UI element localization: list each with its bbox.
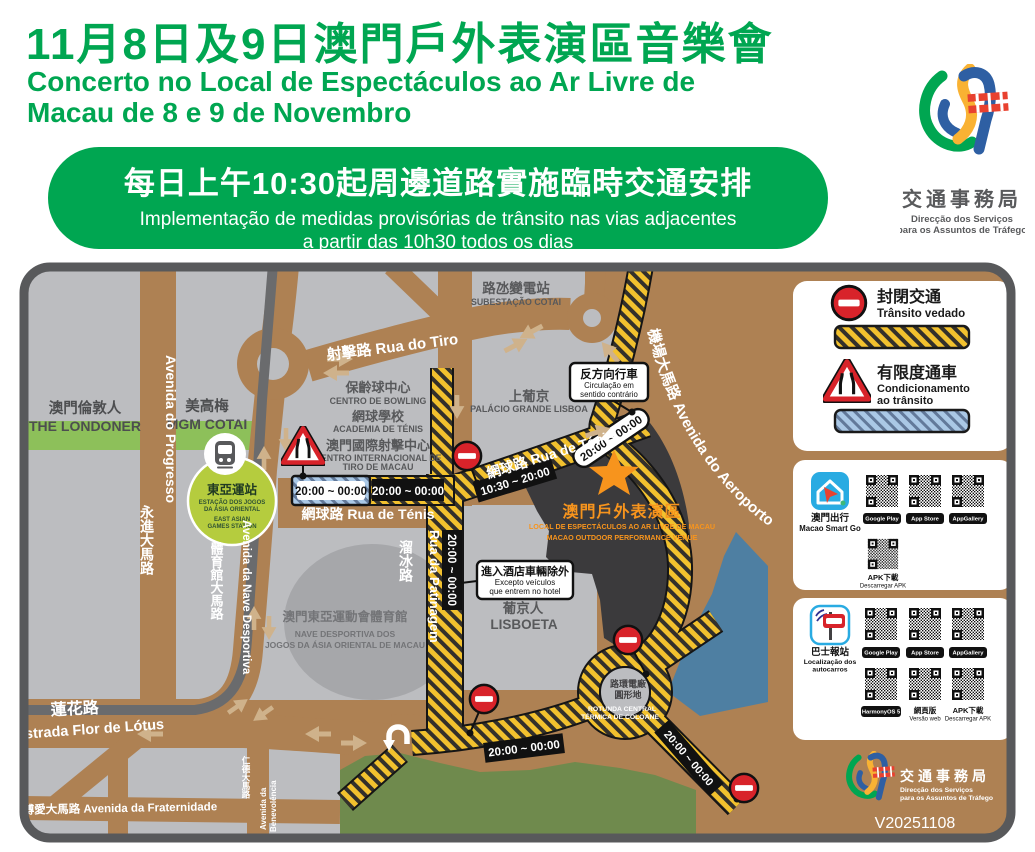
- svg-text:AppGallery: AppGallery: [953, 517, 985, 523]
- bus-app-icon: [811, 606, 849, 644]
- qr-bus-web: [907, 666, 943, 702]
- legend-cond-swatch: [835, 410, 969, 432]
- svg-text:20:00 ~ 00:00: 20:00 ~ 00:00: [445, 534, 457, 606]
- svg-text:溜冰路: 溜冰路: [398, 539, 414, 582]
- svg-text:路氹變電站: 路氹變電站: [482, 280, 550, 296]
- qr-bus-harmony: [863, 666, 899, 702]
- legend-no-entry-icon: [832, 286, 866, 320]
- time-label-2: 20:00 ~ 00:00: [442, 530, 462, 610]
- poster: 11月8日及9日澳門戶外表演區音樂會 Concerto no Local de …: [0, 0, 1035, 852]
- svg-text:Google Play: Google Play: [865, 517, 899, 523]
- qr-bus-apk: [950, 666, 986, 702]
- bus-web-zh: 網頁版: [914, 705, 937, 715]
- no-entry-icon: [470, 685, 498, 713]
- svg-text:澳門國際射擊中心: 澳門國際射擊中心: [326, 438, 430, 453]
- svg-text:ACADEMIA DE TÉNIS: ACADEMIA DE TÉNIS: [333, 424, 423, 434]
- svg-text:ROTUNDA CENTRAL: ROTUNDA CENTRAL: [588, 706, 656, 713]
- svg-text:網球學校: 網球學校: [352, 409, 405, 424]
- svg-text:澳門東亞運動會體育館: 澳門東亞運動會體育館: [282, 609, 407, 624]
- bus-badges: Google Play App Store AppGallery: [862, 647, 987, 658]
- venue-label-pt: LOCAL DE ESPECTÁCULOS AO AR LIVRE DE MAC…: [529, 522, 715, 531]
- svg-text:sentido contrário: sentido contrário: [580, 390, 638, 399]
- svg-text:Circulação em: Circulação em: [584, 381, 634, 390]
- app-panel-smartgo: 澳門出行 Macao Smart Go Google Play App Stor…: [793, 460, 1012, 590]
- svg-text:JOGOS DA ÁSIA ORIENTAL DE MACA: JOGOS DA ÁSIA ORIENTAL DE MACAU: [265, 640, 425, 650]
- qr-smartgo-apk: [866, 537, 900, 571]
- bus-apk-pt: Descarregar APK: [945, 717, 991, 723]
- legend-closed-swatch: [835, 326, 969, 348]
- smartgo-apk-pt: Descarregar APK: [860, 584, 906, 590]
- svg-text:THE LONDONER: THE LONDONER: [29, 418, 141, 434]
- qr-bus-googleplay: [863, 606, 899, 642]
- legend-cond-pt1: Condicionamento: [877, 383, 970, 395]
- svg-text:美高梅: 美高梅: [185, 397, 229, 415]
- svg-text:Avenida do Progresso: Avenida do Progresso: [163, 355, 179, 503]
- legend-closed-zh: 封閉交通: [877, 287, 941, 306]
- svg-text:CENTRO DE BOWLING: CENTRO DE BOWLING: [330, 396, 427, 406]
- qr-bus-appgallery: [950, 606, 986, 642]
- legend-cond-pt2: ao trânsito: [877, 395, 934, 407]
- bus-name-pt1: Localização dos: [804, 659, 857, 666]
- qr-smartgo-appstore: [907, 473, 943, 509]
- svg-text:東亞運站: 東亞運站: [207, 482, 258, 497]
- svg-text:葡京人: 葡京人: [502, 600, 544, 616]
- svg-text:永進大馬路: 永進大馬路: [139, 504, 155, 575]
- svg-text:ESTAÇÃO DOS JOGOS: ESTAÇÃO DOS JOGOS: [199, 499, 266, 506]
- svg-text:TÉRMICA DE COLOANE: TÉRMICA DE COLOANE: [581, 712, 659, 721]
- svg-text:Google Play: Google Play: [864, 651, 898, 657]
- legend-panel: 封閉交通 Trânsito vedado 有限度通車 Condicionamen…: [793, 281, 1012, 451]
- bus-name-zh: 巴士報站: [811, 646, 850, 658]
- smartgo-name-zh: 澳門出行: [811, 512, 850, 524]
- harmony-badge-label: HarmonyOS 5: [862, 710, 901, 716]
- venue-label-en: MACAO OUTDOOR PERFORMANCE VENUE: [547, 533, 698, 542]
- svg-text:路環電廠: 路環電廠: [610, 678, 647, 689]
- svg-text:Avenida da Nave Desportiva: Avenida da Nave Desportiva: [240, 520, 252, 675]
- legend-cond-zh: 有限度通車: [877, 363, 957, 382]
- footer-dsat-zh: 交通事務局: [900, 768, 990, 784]
- roundabout-north-island: [583, 309, 601, 327]
- svg-text:上葡京: 上葡京: [509, 388, 550, 404]
- qr-smartgo-appgallery: [950, 473, 986, 509]
- no-entry-icon: [453, 442, 481, 470]
- time-label-blue: 20:00 ~ 00:00: [295, 481, 367, 500]
- qr-bus-appstore: [907, 606, 943, 642]
- svg-text:LISBOETA: LISBOETA: [490, 617, 558, 632]
- svg-text:NAVE DESPORTIVA DOS: NAVE DESPORTIVA DOS: [295, 629, 396, 639]
- svg-text:AppGallery: AppGallery: [953, 651, 985, 657]
- svg-text:反方向行車: 反方向行車: [580, 367, 638, 381]
- no-entry-icon: [614, 626, 642, 654]
- bus-apk-zh: APK下載: [953, 705, 984, 715]
- svg-text:20:00 ~ 00:00: 20:00 ~ 00:00: [372, 486, 444, 498]
- legend-closed-pt: Trânsito vedado: [877, 308, 965, 320]
- smartgo-name-en: Macao Smart Go: [799, 524, 861, 533]
- svg-text:體育館大馬路: 體育館大馬路: [209, 541, 224, 620]
- svg-text:保齡球中心: 保齡球中心: [344, 380, 410, 395]
- smartgo-apk-zh: APK下載: [868, 572, 899, 582]
- svg-text:Avenida da: Avenida da: [259, 787, 268, 830]
- svg-text:App Store: App Store: [911, 651, 939, 657]
- bus-name-pt2: autocarros: [812, 667, 847, 674]
- map-canvas: 20:00 ~ 00:00 20:00 ~ 00:00 20:00 ~ 00:0…: [15, 264, 1012, 838]
- svg-text:仁德大馬路: 仁德大馬路: [241, 755, 251, 799]
- smartgo-app-icon: [811, 472, 849, 510]
- smartgo-badges: Google Play App Store AppGallery: [863, 513, 987, 524]
- app-panel-bus: 巴士報站 Localização dos autocarros Google P…: [793, 598, 1012, 740]
- no-entry-icon: [730, 774, 758, 802]
- version-number: V20251108: [875, 815, 956, 832]
- train-icon: [215, 441, 235, 469]
- time-label-1: 20:00 ~ 00:00: [372, 479, 444, 501]
- svg-text:圓形地: 圓形地: [614, 689, 641, 700]
- venue-label-zh: 澳門戶外表演區: [562, 502, 681, 521]
- svg-text:que entrem no hotel: que entrem no hotel: [489, 587, 560, 596]
- svg-text:Benevolência: Benevolência: [269, 780, 278, 832]
- svg-text:SUBESTAÇÃO COTAI: SUBESTAÇÃO COTAI: [471, 297, 561, 307]
- svg-text:PALÁCIO GRANDE LISBOA: PALÁCIO GRANDE LISBOA: [470, 404, 588, 414]
- svg-text:TIRO DE MACAU: TIRO DE MACAU: [343, 462, 414, 472]
- svg-text:進入酒店車輛除外: 進入酒店車輛除外: [481, 564, 569, 578]
- footer-dsat-pt2: para os Assuntos de Tráfego: [900, 795, 993, 802]
- svg-text:網球路 Rua de Ténis: 網球路 Rua de Ténis: [301, 506, 434, 522]
- svg-text:DA ÁSIA ORIENTAL: DA ÁSIA ORIENTAL: [204, 506, 260, 513]
- svg-text:20:00 ~ 00:00: 20:00 ~ 00:00: [295, 486, 367, 498]
- footer-dsat-pt1: Direcção dos Serviços: [900, 787, 973, 794]
- svg-text:Excepto veículos: Excepto veículos: [495, 578, 555, 587]
- svg-text:App Store: App Store: [911, 517, 939, 523]
- svg-text:Rua da Patinagem: Rua da Patinagem: [427, 530, 442, 643]
- qr-smartgo-googleplay: [864, 473, 900, 509]
- bus-web-pt: Versão web: [909, 717, 941, 723]
- svg-text:澳門倫敦人: 澳門倫敦人: [49, 399, 122, 417]
- svg-text:蓮花路: 蓮花路: [50, 698, 100, 720]
- traffic-map: 20:00 ~ 00:00 20:00 ~ 00:00 20:00 ~ 00:0…: [0, 0, 1035, 852]
